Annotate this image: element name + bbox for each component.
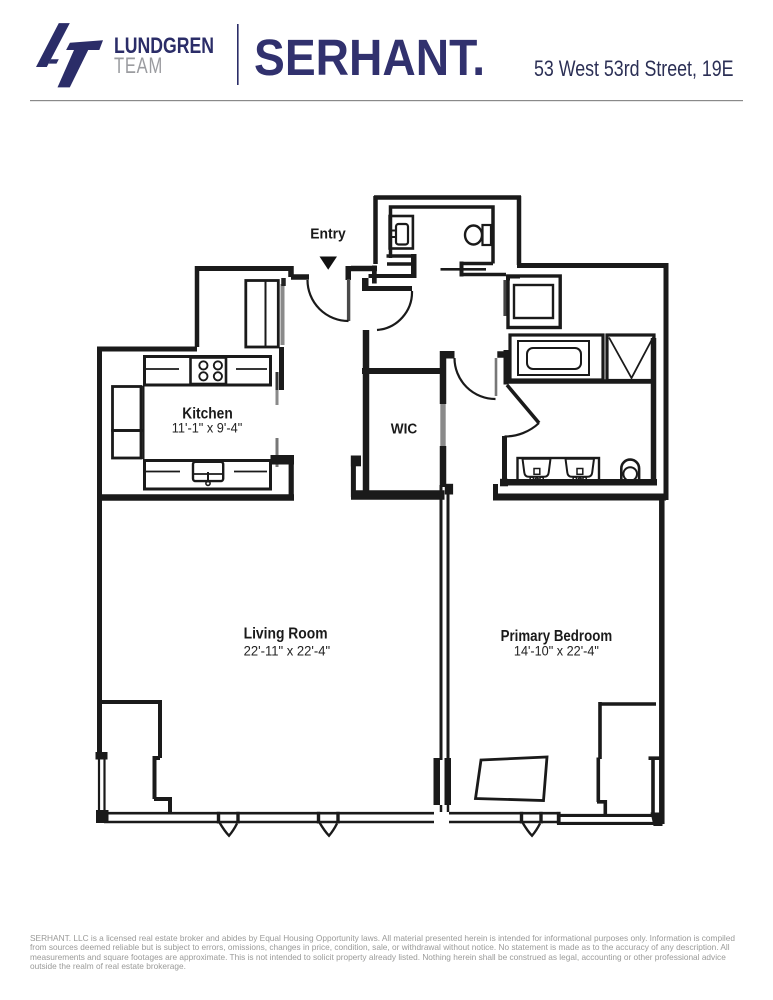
svg-text:WIC: WIC — [391, 422, 418, 438]
svg-text:Entry: Entry — [310, 227, 346, 243]
svg-text:Living Room: Living Room — [244, 626, 328, 643]
svg-text:22'-11" x 22'-4": 22'-11" x 22'-4" — [244, 644, 331, 659]
svg-text:11'-1" x 9'-4": 11'-1" x 9'-4" — [172, 421, 243, 436]
svg-text:14'-10" x 22'-4": 14'-10" x 22'-4" — [514, 644, 599, 659]
svg-text:Primary Bedroom: Primary Bedroom — [501, 628, 613, 645]
